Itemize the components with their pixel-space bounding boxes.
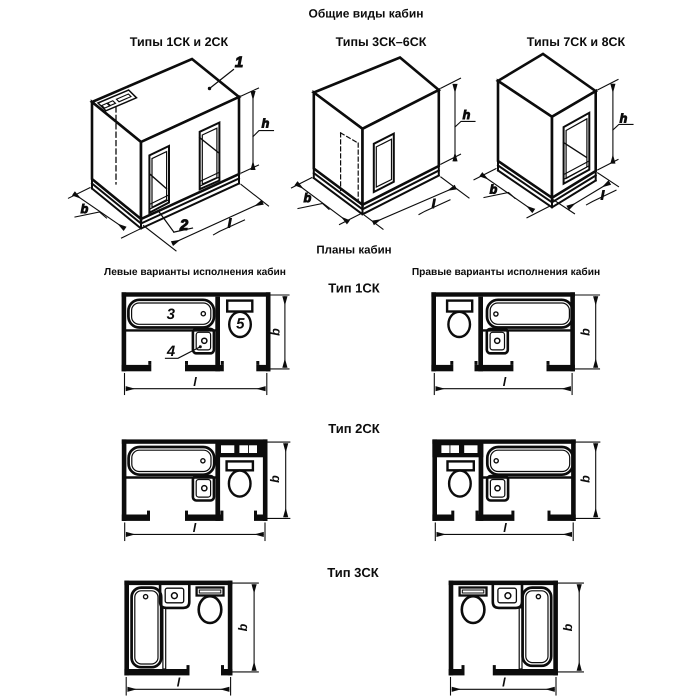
svg-text:Тип 1СК: Тип 1СК <box>328 280 380 295</box>
svg-text:b: b <box>236 623 250 631</box>
svg-text:l: l <box>432 197 436 211</box>
svg-text:l: l <box>502 676 506 690</box>
svg-text:l: l <box>601 189 605 203</box>
svg-text:Правые варианты исполнения каб: Правые варианты исполнения кабин <box>412 267 600 278</box>
svg-text:2: 2 <box>179 217 189 234</box>
svg-text:h: h <box>262 117 270 131</box>
svg-text:b: b <box>578 328 592 336</box>
svg-text:l: l <box>193 521 197 535</box>
svg-text:h: h <box>463 108 471 122</box>
svg-text:b: b <box>81 202 89 216</box>
svg-text:b: b <box>268 475 282 483</box>
svg-text:Левые варианты исполнения каби: Левые варианты исполнения кабин <box>104 267 286 278</box>
svg-text:1: 1 <box>235 54 243 71</box>
svg-text:3: 3 <box>167 306 176 323</box>
svg-text:b: b <box>561 623 575 631</box>
svg-text:Типы 3СК–6СК: Типы 3СК–6СК <box>336 35 427 49</box>
svg-text:Тип 3СК: Тип 3СК <box>327 565 379 580</box>
svg-text:l: l <box>503 375 507 389</box>
svg-text:Общие виды кабин: Общие виды кабин <box>309 7 424 21</box>
svg-text:l: l <box>503 521 507 535</box>
svg-text:l: l <box>193 375 197 389</box>
svg-text:b: b <box>578 475 592 483</box>
svg-text:b: b <box>304 191 312 205</box>
svg-text:Тип 2СК: Тип 2СК <box>328 421 380 436</box>
svg-text:Планы кабин: Планы кабин <box>316 245 391 257</box>
svg-text:Типы 1СК и 2СК: Типы 1СК и 2СК <box>130 35 229 49</box>
svg-text:4: 4 <box>166 343 176 360</box>
svg-text:Типы 7СК и 8СК: Типы 7СК и 8СК <box>527 35 626 49</box>
svg-text:b: b <box>269 328 283 336</box>
svg-text:b: b <box>490 183 498 197</box>
svg-text:5: 5 <box>236 316 245 333</box>
svg-text:l: l <box>228 217 232 231</box>
svg-text:l: l <box>177 676 181 690</box>
svg-text:h: h <box>620 111 628 125</box>
